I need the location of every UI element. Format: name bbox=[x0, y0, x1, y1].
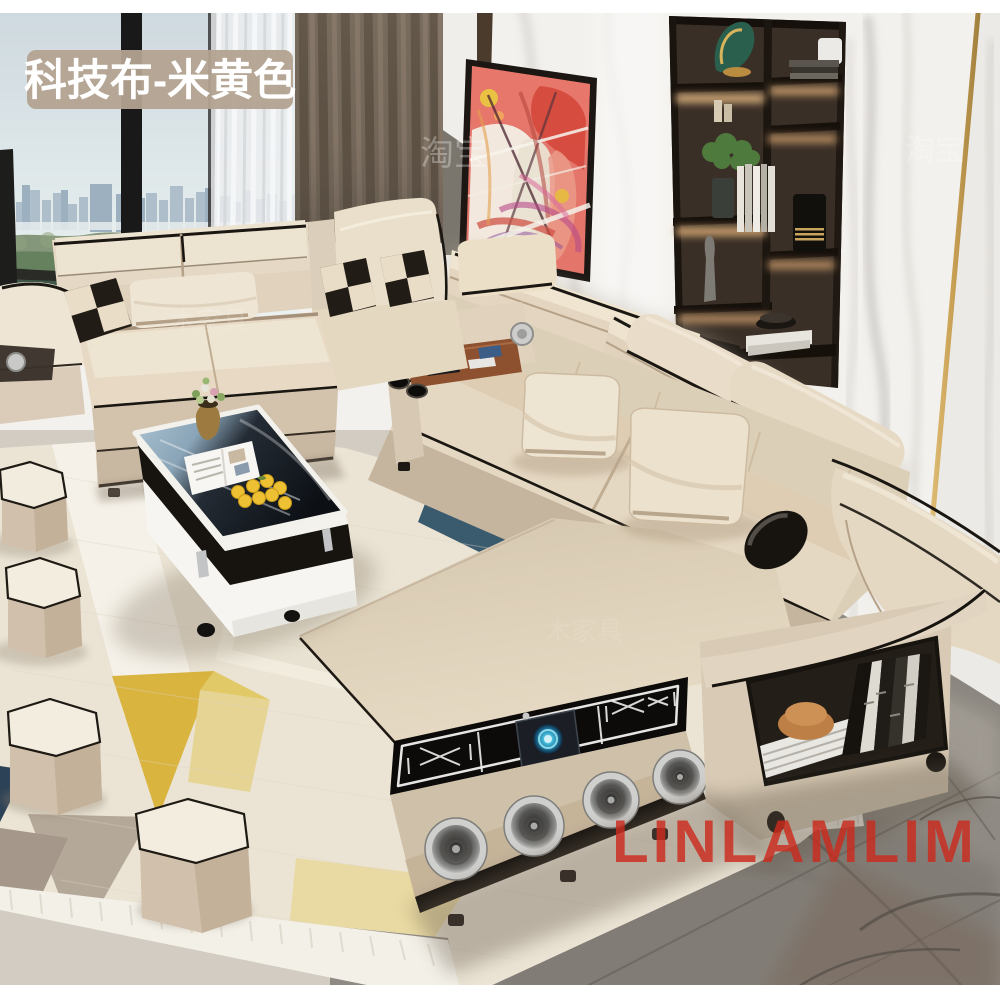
svg-text:木家具: 木家具 bbox=[545, 616, 623, 646]
svg-text:淘宝: 淘宝 bbox=[905, 134, 965, 167]
svg-text:科技布-米黄色: 科技布-米黄色 bbox=[24, 57, 296, 105]
svg-text:LINLAMLIM: LINLAMLIM bbox=[612, 808, 978, 875]
svg-text:木家具: 木家具 bbox=[170, 306, 248, 336]
svg-text:淘宝: 淘宝 bbox=[420, 135, 488, 173]
